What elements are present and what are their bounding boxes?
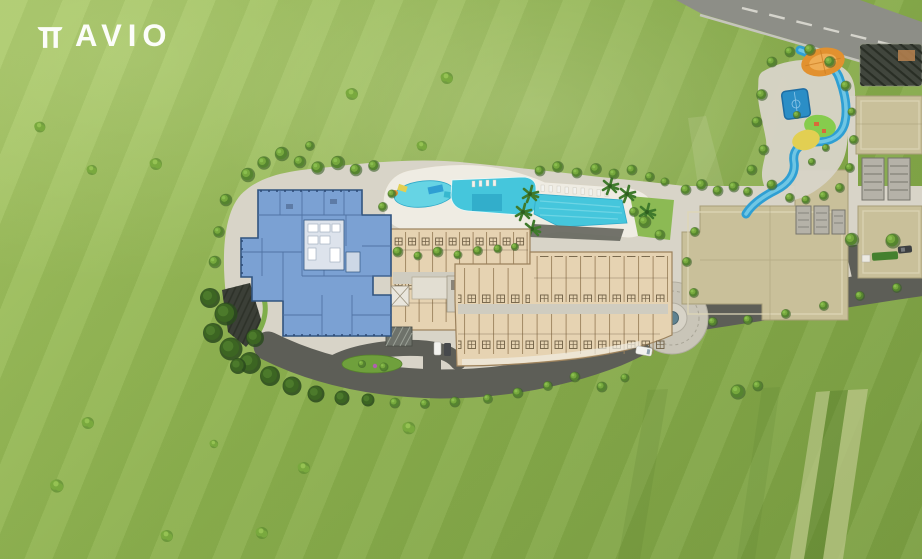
tree bbox=[260, 366, 280, 386]
tree bbox=[621, 374, 630, 383]
tree bbox=[358, 360, 366, 368]
tree bbox=[682, 257, 692, 267]
tree bbox=[390, 398, 401, 409]
tree bbox=[885, 233, 900, 248]
brand-name: AVIO bbox=[75, 20, 173, 52]
bush bbox=[210, 440, 219, 448]
podium-roof-north bbox=[856, 96, 922, 154]
main-pool-deep-end bbox=[472, 194, 502, 211]
tree bbox=[802, 196, 811, 205]
tree bbox=[696, 179, 708, 191]
pergola-roof bbox=[860, 44, 922, 86]
tree bbox=[513, 388, 524, 399]
service-core bbox=[304, 220, 344, 270]
tree bbox=[454, 251, 463, 260]
play-equipment bbox=[814, 122, 819, 126]
tree bbox=[781, 309, 791, 319]
brand-logo: AVIO bbox=[34, 20, 173, 51]
tree bbox=[450, 397, 461, 408]
tree bbox=[368, 160, 380, 172]
tree bbox=[785, 193, 795, 203]
tree bbox=[661, 178, 670, 187]
tree bbox=[629, 207, 639, 217]
bush bbox=[50, 479, 64, 492]
tree bbox=[841, 81, 852, 92]
tree bbox=[767, 180, 778, 191]
unit-rows bbox=[534, 256, 668, 302]
tree bbox=[681, 185, 692, 196]
tree bbox=[308, 386, 325, 403]
tree bbox=[743, 315, 753, 325]
tree bbox=[552, 161, 564, 173]
tree bbox=[819, 301, 829, 311]
tree bbox=[241, 168, 255, 182]
tree bbox=[855, 291, 865, 301]
tree bbox=[230, 358, 246, 374]
tree bbox=[729, 182, 740, 193]
tree bbox=[639, 216, 652, 229]
corridor bbox=[458, 304, 668, 314]
parked-car bbox=[434, 342, 441, 355]
tree bbox=[804, 44, 816, 56]
tree bbox=[200, 288, 220, 308]
tree bbox=[819, 191, 829, 201]
parked-car bbox=[444, 343, 451, 356]
tree bbox=[215, 303, 238, 326]
worn-path bbox=[688, 116, 724, 186]
tree bbox=[393, 247, 404, 258]
dark-grass-band bbox=[618, 389, 668, 559]
tree bbox=[767, 57, 778, 68]
tree bbox=[845, 163, 855, 173]
play-equipment bbox=[822, 129, 826, 133]
tree bbox=[708, 317, 718, 327]
tree bbox=[535, 166, 546, 177]
tree bbox=[257, 156, 271, 170]
tree bbox=[747, 165, 758, 176]
tree bbox=[756, 89, 768, 101]
courtyard bbox=[412, 277, 448, 299]
rooftop-core bbox=[796, 206, 845, 234]
tree bbox=[283, 377, 302, 396]
tree bbox=[808, 158, 816, 166]
skylight-hatch bbox=[391, 286, 409, 306]
tree bbox=[689, 288, 699, 298]
stair-core bbox=[346, 252, 360, 272]
tree bbox=[753, 381, 764, 392]
tree bbox=[331, 156, 345, 170]
dark-grass-band bbox=[737, 387, 780, 559]
dark-car bbox=[898, 245, 913, 253]
tree bbox=[570, 372, 581, 383]
tree bbox=[793, 111, 801, 119]
master-plan-canvas bbox=[0, 0, 922, 559]
bush bbox=[34, 122, 45, 133]
tree bbox=[849, 135, 859, 145]
bush bbox=[402, 422, 415, 435]
tree bbox=[294, 156, 307, 169]
tree bbox=[713, 186, 724, 197]
tree bbox=[835, 183, 845, 193]
tree bbox=[892, 283, 902, 293]
tree bbox=[473, 246, 483, 256]
tree bbox=[335, 391, 350, 406]
tree bbox=[305, 141, 315, 151]
tree bbox=[743, 187, 753, 197]
tree bbox=[414, 252, 423, 261]
tree bbox=[350, 164, 363, 177]
tree bbox=[388, 190, 397, 199]
bush bbox=[441, 72, 453, 84]
tree bbox=[845, 233, 859, 247]
bush bbox=[298, 462, 310, 474]
tree bbox=[220, 338, 243, 361]
tree bbox=[494, 245, 503, 254]
tree bbox=[275, 147, 289, 161]
tree bbox=[822, 144, 830, 152]
tree bbox=[645, 172, 655, 182]
bush bbox=[256, 527, 268, 539]
brand-mark-pi-icon bbox=[34, 22, 66, 50]
tree bbox=[420, 399, 430, 409]
tree bbox=[511, 243, 519, 251]
tree bbox=[609, 169, 620, 180]
bush bbox=[150, 158, 162, 170]
tree bbox=[655, 230, 666, 241]
tree bbox=[380, 363, 389, 372]
tree bbox=[730, 384, 745, 399]
tree bbox=[209, 256, 222, 269]
tree bbox=[362, 394, 375, 407]
bush bbox=[417, 141, 428, 151]
tree bbox=[483, 394, 493, 404]
tree bbox=[311, 161, 325, 175]
tree bbox=[759, 145, 770, 156]
tree bbox=[597, 382, 608, 393]
roof-vent bbox=[286, 204, 293, 209]
island-lawn bbox=[342, 355, 402, 373]
tree bbox=[590, 163, 602, 175]
roof-vent bbox=[330, 199, 337, 204]
tree bbox=[433, 247, 444, 258]
kiosk bbox=[862, 255, 870, 262]
bush bbox=[87, 165, 98, 175]
dropoff-island bbox=[342, 355, 402, 373]
pergola-wood-patch bbox=[898, 50, 915, 61]
tree bbox=[203, 323, 223, 343]
bush bbox=[346, 88, 358, 100]
tree bbox=[690, 227, 700, 237]
bush bbox=[82, 417, 94, 429]
tree bbox=[378, 202, 388, 212]
tree bbox=[785, 47, 796, 58]
site-plan-rendering: AVIO bbox=[0, 0, 922, 559]
bush bbox=[161, 530, 173, 542]
tree bbox=[246, 329, 264, 347]
tree bbox=[220, 194, 233, 207]
tree bbox=[848, 108, 857, 117]
tree bbox=[543, 381, 553, 391]
tree bbox=[572, 168, 583, 179]
tree bbox=[824, 56, 836, 68]
island-flowers bbox=[373, 364, 377, 368]
tree bbox=[752, 117, 763, 128]
tree bbox=[213, 226, 225, 238]
tree bbox=[627, 165, 638, 176]
unit-rows bbox=[458, 268, 530, 304]
